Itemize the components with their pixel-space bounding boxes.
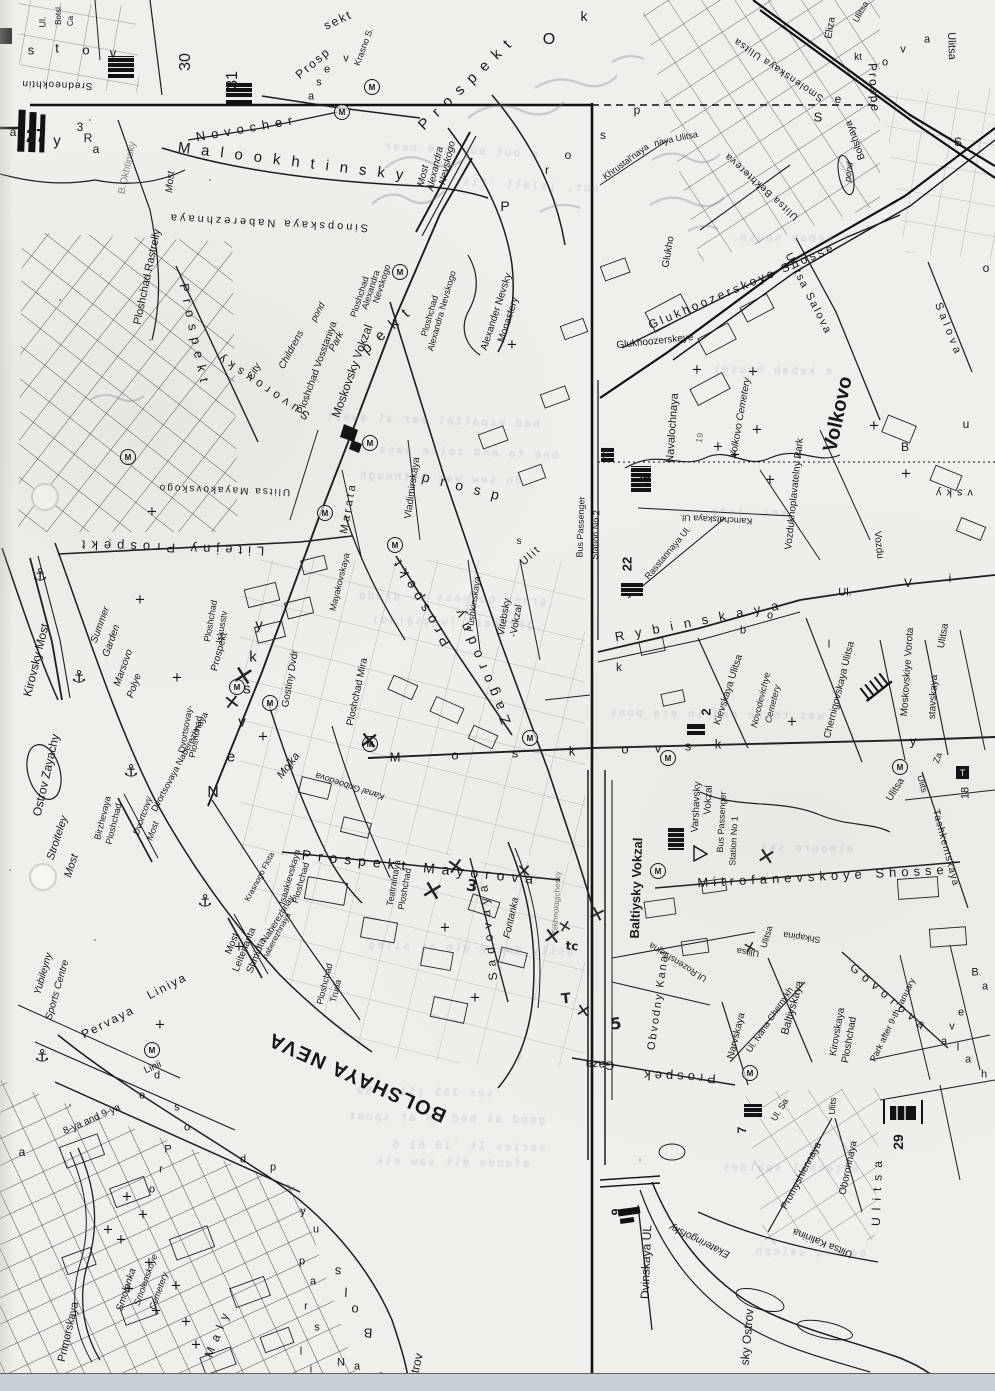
ghost-text: was there end in era pons [608,706,824,723]
pen-mark: ✕ [222,691,241,713]
ghost-text: ker. iste [709,505,787,519]
ghost-text: J kebab house. [730,230,851,245]
scanned-map-page: T [0,0,995,1391]
pen-mark: tc [565,939,579,952]
ghost-text: edaseq ualeph [754,1245,866,1260]
pen-mark: T [561,992,572,1007]
ghost-text: good as bed on at spoot [347,1110,546,1126]
pen-mark: 5 [609,1015,622,1032]
ghost-text: dn sew was although [358,469,522,488]
pen-mark: ✕ [418,877,445,908]
pen-mark: ✕ [741,939,758,958]
pen-mark: ✕ [358,728,381,754]
pen-mark: ✕ [516,863,531,881]
ghost-text: sec 155 (516) 89 [355,1084,493,1099]
ghost-text: series It '10 61 6 [390,1138,545,1154]
pen-mark: ✕ [230,662,257,692]
pen-mark: ✕ [557,918,573,936]
ghost-text: afunda dlt saw elk [374,1154,529,1170]
pen-mark: ✕ [574,1002,592,1022]
pen-mark: 3 [465,877,479,895]
scanner-edge-strip [0,1373,995,1391]
ghost-text: gib pas' (wagsgrad) [370,613,534,632]
pen-mark: ✕ [445,856,467,881]
ghost-text: e kebab house) [712,362,833,377]
ghost-text: m out out one near [382,139,538,160]
ghost-text: one to end tolse pass [377,442,558,461]
ghost-text: autochtl saaldes [721,1160,859,1175]
pen-mark: ✕ [586,902,608,926]
ghost-text: had espaliol par al aweil [324,410,540,431]
annotation-layer: had espaliol par al aweilone to end tols… [0,0,995,1391]
ghost-text: grens bonness el grada [357,588,547,608]
pen-mark: ✕ [755,845,778,870]
ghost-text: out, (s)all 'tis [461,175,599,195]
